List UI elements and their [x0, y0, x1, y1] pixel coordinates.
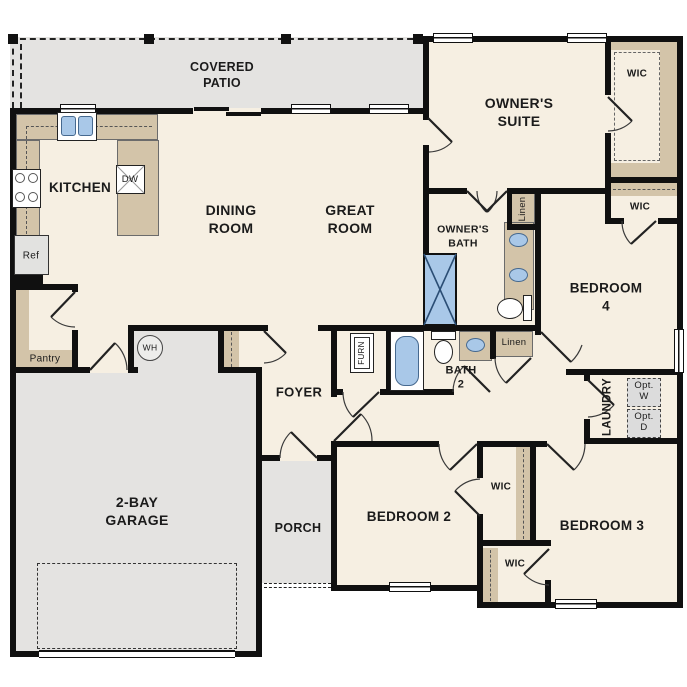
label-opt-dryer: Opt. D — [634, 412, 653, 434]
door-arc — [343, 392, 353, 417]
door-arc — [622, 221, 631, 244]
door-arc — [495, 358, 506, 383]
door-arc — [361, 414, 372, 441]
label-linen-owners: Linen — [517, 197, 529, 222]
door-leaf — [51, 292, 75, 317]
door-arc — [524, 574, 549, 585]
label-wic-2: WIC — [630, 201, 650, 214]
floor-plan: COVERED PATIO KITCHEN DINING ROOM GREAT … — [0, 0, 687, 687]
label-owners-suite: OWNER'S SUITE — [485, 94, 553, 130]
door-arc — [574, 444, 585, 470]
door-arc — [115, 343, 127, 370]
door-arc — [455, 479, 480, 491]
door-leaf — [90, 343, 115, 370]
doors-layer — [0, 0, 687, 687]
label-porch: PORCH — [275, 520, 322, 536]
label-wic-3: WIC — [491, 481, 511, 494]
door-arc — [51, 317, 75, 327]
label-wic-4: WIC — [505, 558, 525, 571]
label-foyer: FOYER — [276, 385, 322, 402]
label-wic-owners: WIC — [627, 68, 647, 81]
label-opt-washer: Opt. W — [634, 381, 653, 403]
label-garage: 2-BAY GARAGE — [105, 493, 168, 529]
door-leaf — [541, 332, 571, 362]
label-refrigerator: Ref — [23, 250, 39, 263]
door-arc — [280, 432, 291, 458]
label-bedroom-2: BEDROOM 2 — [367, 508, 451, 526]
door-leaf — [264, 331, 286, 353]
door-leaf — [631, 221, 656, 244]
label-covered-patio: COVERED PATIO — [190, 59, 254, 92]
label-water-heater: WH — [143, 342, 158, 353]
door-leaf — [353, 392, 379, 417]
door-arc — [608, 121, 632, 131]
label-laundry: LAUNDRY — [601, 378, 616, 436]
label-bedroom-4: BEDROOM 4 — [566, 279, 647, 314]
label-bath-2: BATH 2 — [446, 364, 477, 393]
door-leaf — [334, 414, 361, 441]
label-linen-hall: Linen — [502, 337, 527, 349]
door-leaf — [524, 549, 549, 574]
door-arc — [439, 444, 450, 470]
door-leaf — [450, 444, 477, 470]
label-dining-room: DINING ROOM — [206, 201, 257, 237]
door-arc — [429, 142, 452, 152]
door-leaf — [506, 358, 531, 383]
door-leaf — [455, 491, 480, 516]
label-owners-bath: OWNER'S BATH — [437, 223, 489, 250]
door-leaf — [547, 444, 574, 470]
door-arc — [264, 353, 286, 363]
door-leaf — [291, 432, 317, 458]
label-pantry: Pantry — [30, 353, 61, 366]
door-leaf — [428, 118, 452, 142]
door-leaf — [608, 97, 632, 121]
label-bedroom-3: BEDROOM 3 — [560, 517, 644, 535]
label-furnace: FURN — [357, 341, 367, 364]
label-great-room: GREAT ROOM — [325, 201, 374, 237]
label-dishwasher: DW — [122, 174, 138, 186]
door-arc — [571, 345, 582, 362]
label-kitchen: KITCHEN — [49, 179, 111, 197]
